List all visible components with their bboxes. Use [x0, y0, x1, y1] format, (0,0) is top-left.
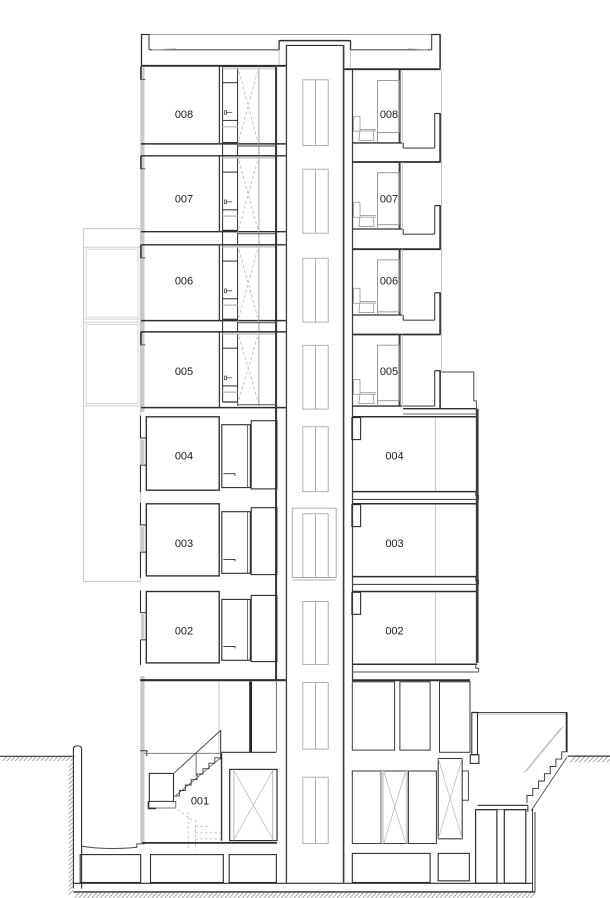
- svg-text:005: 005: [175, 366, 193, 378]
- svg-text:003: 003: [175, 538, 193, 550]
- svg-text:002: 002: [385, 626, 403, 638]
- svg-text:001: 001: [191, 796, 209, 808]
- svg-text:004: 004: [385, 451, 403, 463]
- svg-text:002: 002: [175, 626, 193, 638]
- svg-text:006: 006: [175, 275, 193, 287]
- svg-text:003: 003: [385, 538, 403, 550]
- svg-text:007: 007: [380, 194, 398, 206]
- svg-text:008: 008: [380, 109, 398, 121]
- svg-text:005: 005: [380, 366, 398, 378]
- svg-text:006: 006: [380, 275, 398, 287]
- svg-text:008: 008: [175, 109, 193, 121]
- svg-text:004: 004: [175, 451, 193, 463]
- svg-text:007: 007: [175, 194, 193, 206]
